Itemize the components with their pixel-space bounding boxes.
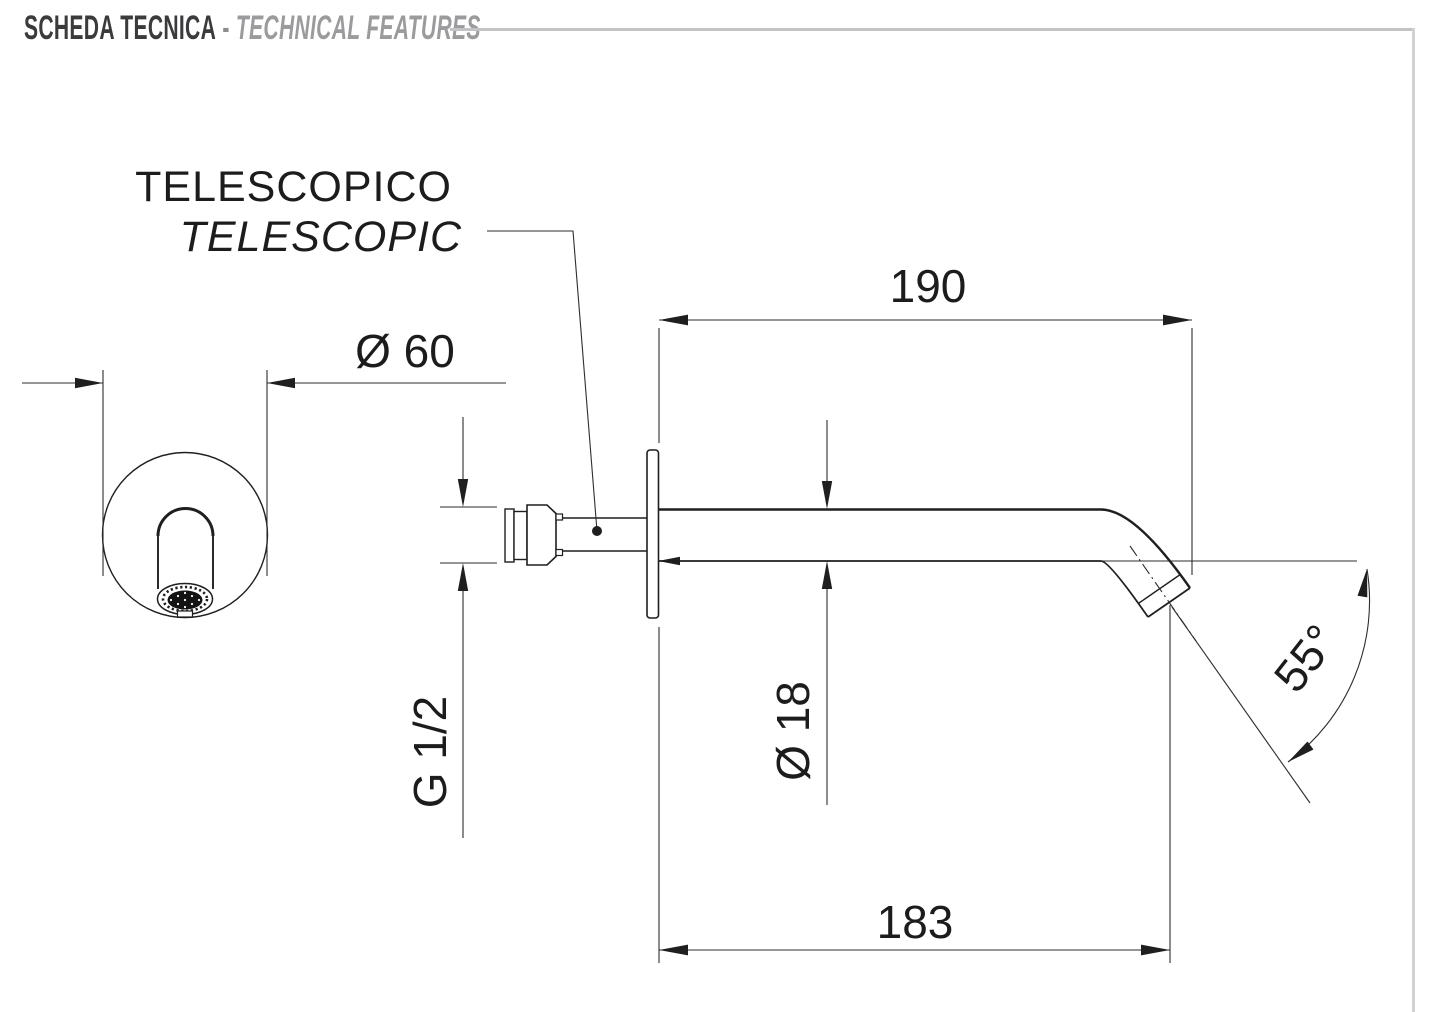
leader-dot: [592, 526, 602, 536]
wall-flange: [647, 450, 659, 618]
connector-nub-top: [556, 514, 563, 520]
dim-tube-diameter-label: Ø 18: [767, 681, 819, 781]
connector-nub-bottom: [556, 550, 563, 556]
dim-outlet-angle: 55°: [1172, 569, 1370, 803]
technical-drawing: Ø 60 TEL: [0, 0, 1442, 1012]
dim-reach-upper-label: 190: [890, 260, 967, 312]
dim-reach-lower: 183: [659, 605, 1170, 963]
callout-line2: TELESCOPIC: [180, 213, 462, 261]
connector-ring: [514, 512, 527, 560]
front-view: [103, 453, 268, 618]
connector-end-plate: [505, 509, 514, 562]
dim-reach-lower-label: 183: [877, 896, 954, 948]
dim-outlet-angle-label: 55°: [1263, 615, 1347, 702]
dim-face-diameter: Ø 60: [22, 325, 506, 576]
technical-sheet-page: SCHEDA TECNICA-TECHNICAL FEATURES: [0, 0, 1442, 1012]
side-view: [505, 450, 1357, 641]
spout-bottom-edge: [659, 561, 1148, 617]
dim-face-diameter-label: Ø 60: [355, 325, 455, 377]
spout-front-arc: [158, 508, 213, 536]
dim-inlet-thread-label: G 1/2: [404, 696, 456, 809]
dim-reach-upper: 190: [659, 260, 1192, 575]
dim-inlet-thread: G 1/2: [404, 417, 497, 838]
aerator: [158, 584, 213, 618]
connector-body: [527, 505, 556, 565]
callout-line1: TELESCOPICO: [135, 163, 452, 211]
spout-top-edge: [659, 510, 1191, 589]
dim-tube-diameter: Ø 18: [767, 420, 832, 805]
